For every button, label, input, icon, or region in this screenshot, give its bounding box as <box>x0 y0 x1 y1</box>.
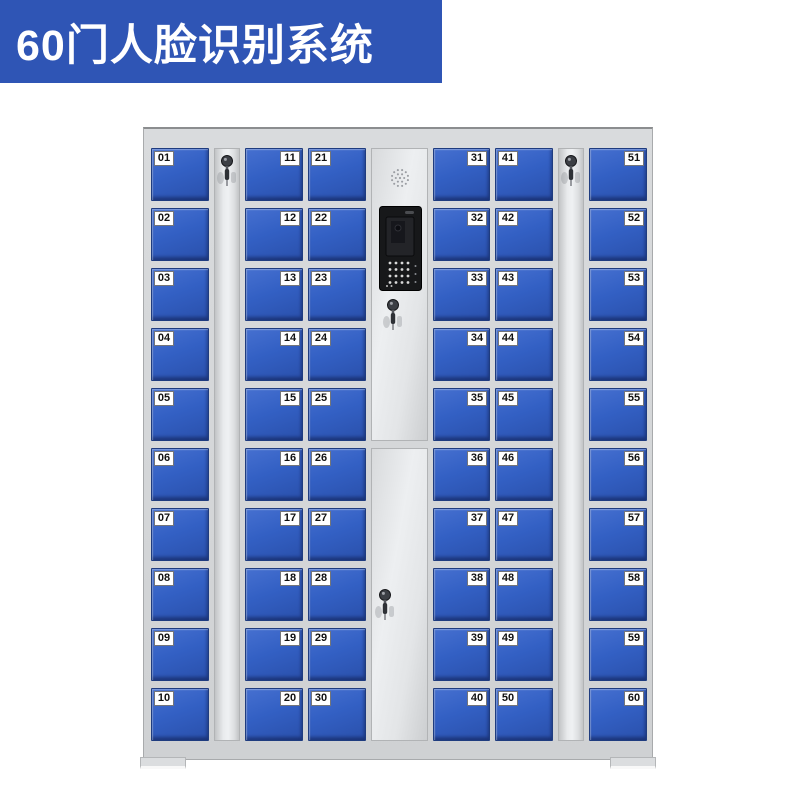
locker-door-60: 60 <box>589 688 647 741</box>
locker-door-16: 16 <box>245 448 303 501</box>
door-number-label: 03 <box>154 271 174 286</box>
door-number-label: 44 <box>498 331 518 346</box>
locker-door-07: 07 <box>151 508 209 561</box>
door-number-label: 52 <box>624 211 644 226</box>
locker-door-24: 24 <box>308 328 366 381</box>
door-number-label: 28 <box>311 571 331 586</box>
door-number-label: 42 <box>498 211 518 226</box>
door-column-4: 31323334353637383940 <box>433 148 490 741</box>
locker-door-04: 04 <box>151 328 209 381</box>
door-number-label: 39 <box>467 631 487 646</box>
door-number-label: 25 <box>311 391 331 406</box>
door-column-5: 41424344454647484950 <box>495 148 553 741</box>
locker-door-10: 10 <box>151 688 209 741</box>
locker-door-03: 03 <box>151 268 209 321</box>
locker-door-45: 45 <box>495 388 553 441</box>
locker-door-44: 44 <box>495 328 553 381</box>
door-number-label: 49 <box>498 631 518 646</box>
locker-door-15: 15 <box>245 388 303 441</box>
door-column-6: 51525354555657585960 <box>589 148 647 741</box>
door-number-label: 07 <box>154 511 174 526</box>
locker-cabinet: 0102030405060708091011121314151617181920… <box>143 127 653 760</box>
locker-door-08: 08 <box>151 568 209 621</box>
door-number-label: 18 <box>280 571 300 586</box>
control-column <box>371 148 428 741</box>
door-number-label: 19 <box>280 631 300 646</box>
locker-door-46: 46 <box>495 448 553 501</box>
locker-door-14: 14 <box>245 328 303 381</box>
door-number-label: 57 <box>624 511 644 526</box>
door-number-label: 02 <box>154 211 174 226</box>
control-panel-door <box>371 148 428 441</box>
locker-door-34: 34 <box>433 328 490 381</box>
door-number-label: 04 <box>154 331 174 346</box>
locker-door-21: 21 <box>308 148 366 201</box>
door-number-label: 06 <box>154 451 174 466</box>
door-number-label: 12 <box>280 211 300 226</box>
door-number-label: 05 <box>154 391 174 406</box>
door-number-label: 53 <box>624 271 644 286</box>
door-number-label: 40 <box>467 691 487 706</box>
lock-strip-2 <box>558 148 584 741</box>
locker-door-09: 09 <box>151 628 209 681</box>
locker-door-12: 12 <box>245 208 303 261</box>
key-lock-icon <box>372 587 398 636</box>
door-number-label: 16 <box>280 451 300 466</box>
door-number-label: 33 <box>467 271 487 286</box>
key-lock-icon <box>558 153 584 202</box>
locker-door-23: 23 <box>308 268 366 321</box>
door-number-label: 41 <box>498 151 518 166</box>
door-number-label: 29 <box>311 631 331 646</box>
door-number-label: 36 <box>467 451 487 466</box>
locker-door-18: 18 <box>245 568 303 621</box>
door-number-label: 13 <box>280 271 300 286</box>
locker-door-54: 54 <box>589 328 647 381</box>
locker-door-13: 13 <box>245 268 303 321</box>
door-number-label: 23 <box>311 271 331 286</box>
locker-door-38: 38 <box>433 568 490 621</box>
door-number-label: 37 <box>467 511 487 526</box>
locker-door-50: 50 <box>495 688 553 741</box>
locker-door-06: 06 <box>151 448 209 501</box>
key-lock-icon <box>380 297 406 346</box>
locker-door-58: 58 <box>589 568 647 621</box>
door-number-label: 50 <box>498 691 518 706</box>
locker-door-17: 17 <box>245 508 303 561</box>
locker-door-33: 33 <box>433 268 490 321</box>
locker-door-01: 01 <box>151 148 209 201</box>
locker-door-48: 48 <box>495 568 553 621</box>
locker-door-30: 30 <box>308 688 366 741</box>
locker-door-32: 32 <box>433 208 490 261</box>
door-number-label: 35 <box>467 391 487 406</box>
mic-slot-icon <box>405 211 414 214</box>
locker-door-31: 31 <box>433 148 490 201</box>
locker-door-36: 36 <box>433 448 490 501</box>
door-number-label: 22 <box>311 211 331 226</box>
door-number-label: 43 <box>498 271 518 286</box>
locker-door-40: 40 <box>433 688 490 741</box>
door-number-label: 48 <box>498 571 518 586</box>
cabinet-foot-right <box>610 757 656 769</box>
locker-door-20: 20 <box>245 688 303 741</box>
door-number-label: 09 <box>154 631 174 646</box>
locker-door-52: 52 <box>589 208 647 261</box>
cabinet-foot-left <box>140 757 186 769</box>
locker-door-56: 56 <box>589 448 647 501</box>
door-column-2: 11121314151617181920 <box>245 148 303 741</box>
locker-door-02: 02 <box>151 208 209 261</box>
door-number-label: 31 <box>467 151 487 166</box>
door-number-label: 27 <box>311 511 331 526</box>
door-number-label: 38 <box>467 571 487 586</box>
door-number-label: 45 <box>498 391 518 406</box>
door-number-label: 55 <box>624 391 644 406</box>
door-number-label: 56 <box>624 451 644 466</box>
locker-grid: 0102030405060708091011121314151617181920… <box>144 129 652 741</box>
locker-door-19: 19 <box>245 628 303 681</box>
locker-door-11: 11 <box>245 148 303 201</box>
door-number-label: 14 <box>280 331 300 346</box>
door-number-label: 24 <box>311 331 331 346</box>
locker-door-37: 37 <box>433 508 490 561</box>
locker-door-42: 42 <box>495 208 553 261</box>
door-column-1: 01020304050607080910 <box>151 148 209 741</box>
locker-door-39: 39 <box>433 628 490 681</box>
locker-door-28: 28 <box>308 568 366 621</box>
door-number-label: 47 <box>498 511 518 526</box>
locker-door-43: 43 <box>495 268 553 321</box>
speaker-grille-icon <box>388 166 412 195</box>
lock-strip-1 <box>214 148 240 741</box>
locker-door-51: 51 <box>589 148 647 201</box>
door-number-label: 32 <box>467 211 487 226</box>
locker-door-55: 55 <box>589 388 647 441</box>
door-number-label: 30 <box>311 691 331 706</box>
door-number-label: 58 <box>624 571 644 586</box>
locker-door-49: 49 <box>495 628 553 681</box>
locker-door-27: 27 <box>308 508 366 561</box>
door-number-label: 10 <box>154 691 174 706</box>
door-number-label: 26 <box>311 451 331 466</box>
locker-door-53: 53 <box>589 268 647 321</box>
door-number-label: 20 <box>280 691 300 706</box>
banner: 60门人脸识别系统 <box>0 0 442 83</box>
door-number-label: 60 <box>624 691 644 706</box>
banner-title: 60门人脸识别系统 <box>16 11 374 73</box>
control-lower-door <box>371 448 428 741</box>
door-number-label: 21 <box>311 151 331 166</box>
camera-lens-icon <box>395 225 401 231</box>
door-number-label: 46 <box>498 451 518 466</box>
locker-door-22: 22 <box>308 208 366 261</box>
door-number-label: 01 <box>154 151 174 166</box>
locker-door-25: 25 <box>308 388 366 441</box>
door-number-label: 11 <box>280 151 300 166</box>
locker-door-41: 41 <box>495 148 553 201</box>
face-recognition-screen <box>379 206 422 296</box>
key-lock-icon <box>214 153 240 202</box>
door-column-3: 21222324252627282930 <box>308 148 366 741</box>
door-number-label: 51 <box>624 151 644 166</box>
locker-door-29: 29 <box>308 628 366 681</box>
locker-door-47: 47 <box>495 508 553 561</box>
door-number-label: 08 <box>154 571 174 586</box>
door-number-label: 15 <box>280 391 300 406</box>
locker-door-35: 35 <box>433 388 490 441</box>
locker-door-59: 59 <box>589 628 647 681</box>
door-number-label: 34 <box>467 331 487 346</box>
door-number-label: 59 <box>624 631 644 646</box>
door-number-label: 54 <box>624 331 644 346</box>
door-number-label: 17 <box>280 511 300 526</box>
locker-door-57: 57 <box>589 508 647 561</box>
locker-door-05: 05 <box>151 388 209 441</box>
locker-door-26: 26 <box>308 448 366 501</box>
